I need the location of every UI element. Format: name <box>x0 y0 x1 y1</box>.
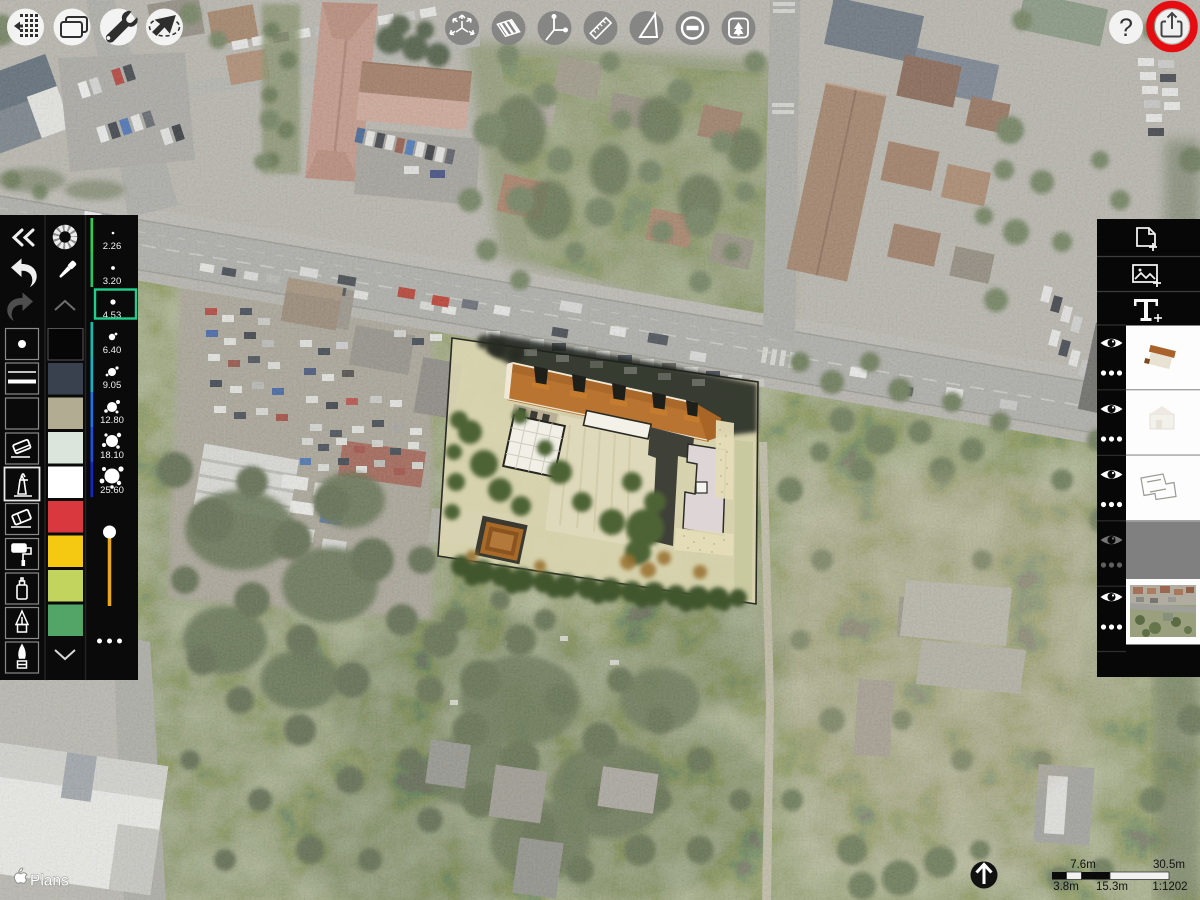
svg-text:3.8m: 3.8m <box>1053 881 1079 893</box>
svg-text:6.40: 6.40 <box>103 345 122 356</box>
svg-text:1:1202: 1:1202 <box>1152 881 1187 893</box>
svg-text:12.80: 12.80 <box>100 415 124 426</box>
svg-text:7.6m: 7.6m <box>1070 859 1096 871</box>
svg-text:9.05: 9.05 <box>103 380 122 391</box>
svg-text:?: ? <box>1119 14 1133 42</box>
svg-text:25.60: 25.60 <box>100 485 124 496</box>
svg-text:30.5m: 30.5m <box>1153 859 1185 871</box>
svg-text:3.20: 3.20 <box>103 276 122 287</box>
svg-text:15.3m: 15.3m <box>1096 881 1128 893</box>
svg-text:Plans: Plans <box>30 873 69 890</box>
svg-text:2.26: 2.26 <box>103 241 122 252</box>
svg-text:18.10: 18.10 <box>100 450 124 461</box>
